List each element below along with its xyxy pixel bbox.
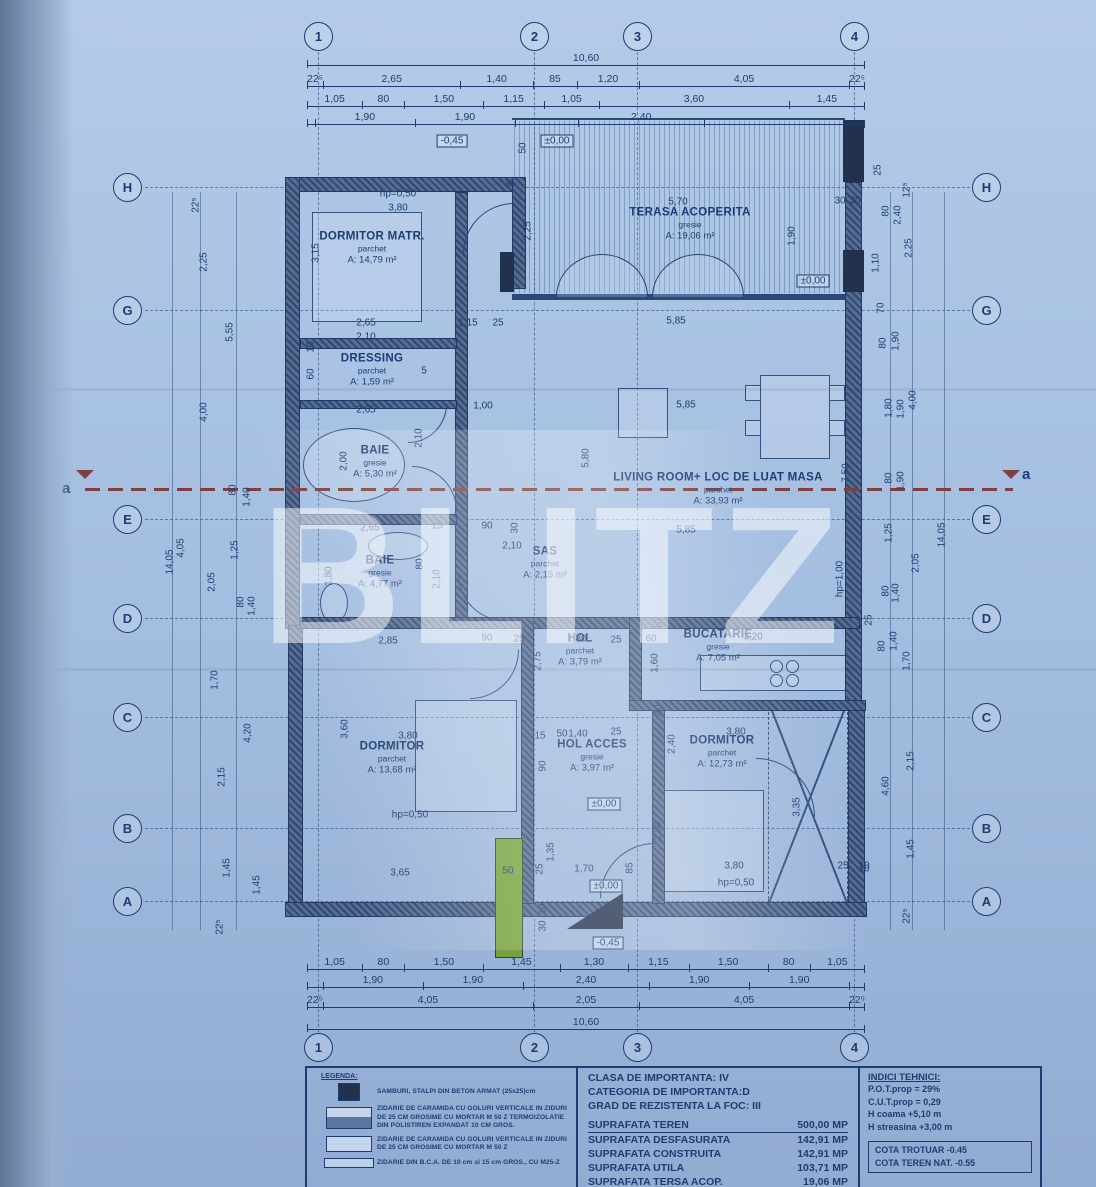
info-block: CLASA DE IMPORTANTA: IV CATEGORIA DE IMP… [576,1068,860,1187]
wall [300,338,457,349]
room-label: DORMITORparchetA: 13,68 m² [360,741,425,776]
dimension-segment: 1,15 [483,93,544,107]
grid-bubble: G [113,296,142,325]
dimension-label: 2,05 [911,553,922,572]
blueprint-photo: 11223344HHGGEEDDCCBBAA10,6022⁵2,651,4085… [0,0,1096,1187]
dimension-label: 2,25 [904,238,915,257]
dimension-label: 12⁵ [902,182,913,197]
grid-bubble: H [113,173,142,202]
dimension-label: 4,00 [199,402,210,421]
entrance-mat [495,838,523,958]
dimension-label: 3,80 [726,727,745,738]
grid-bubble: H [972,173,1001,202]
dimension-label: 30 [538,920,549,931]
dim-chain: 1,901,902,401,901,90 [307,974,865,988]
room-label: DORMITORparchetA: 12,73 m² [690,735,755,770]
suprafata-cell: SUPRAFATA DESFASURATA [588,1133,730,1147]
indice-line: C.U.T.prop = 0,29 [868,1096,1032,1109]
dimension-label: 30 [538,903,549,914]
concrete-column [500,252,514,292]
room-label: TERASA ACOPERITAgresieA: 19,06 m² [629,207,750,242]
room-text: LIVING ROOM+ LOC DE LUAT MASA [613,472,822,484]
dimension-label: 80 [878,337,889,348]
dimension-label: 1,70 [574,864,593,875]
room-text: parchet [319,244,424,254]
dimension-label: 25 [610,727,621,738]
dimension-label: 22⁵ [215,919,226,934]
indice-line: P.O.T.prop = 29% [868,1083,1032,1096]
dimension-label: 25 [535,863,546,874]
room-text: DORMITOR [360,741,425,753]
grid-bubble: E [972,505,1001,534]
dim-chain-line [200,192,201,930]
suprafata-cell: SUPRAFATA TEREN [588,1118,689,1132]
dimension-label: 1,10 [871,253,882,272]
room-text: parchet [341,366,403,376]
dimension-label: 5 [421,366,427,377]
section-label-left: a [62,480,70,497]
dimension-label: 80 [877,640,888,651]
dimension-label: ±0,00 [590,880,623,893]
room-text: DRESSING [341,353,403,365]
dimension-label: 60 [645,634,656,645]
dim-chain: 10,60 [307,1016,865,1030]
dimension-segment: 2,40 [578,111,704,125]
dimension-label: 4,20 [243,723,254,742]
dimension-label: 1,25 [884,523,895,542]
legend-item: SAMBURI, STALPI DIN BETON ARMAT (25x25)c… [321,1084,568,1100]
wall-swatch-icon [326,1136,372,1152]
dimension-label: 1,40 [568,729,587,740]
dimension-label: 1,40 [889,631,900,650]
dimension-label: 5,85 [676,525,695,536]
dimension-label: 2,10 [356,332,375,343]
legend-item-text: ZIDARIE DE CARAMIDA CU GOLURI VERTICALE … [377,1136,568,1153]
dimension-segment: 1,45 [789,93,865,107]
cota-line: COTA TROTUAR -0.45 [875,1144,1025,1157]
dim-chain: 1,05801,501,151,053,601,45 [307,93,865,107]
legend-item: ZIDARIE DE CARAMIDA CU GOLURI VERTICALE … [321,1105,568,1131]
door-swing-arc [463,203,514,254]
indici-block: INDICI TEHNICI: P.O.T.prop = 29%C.U.T.pr… [860,1068,1040,1187]
suprafata-row: SUPRAFATA TEREN500,00 MP [588,1118,848,1133]
grid-bubble: 2 [520,22,549,51]
dimension-segment: 1,45 [483,956,559,970]
room-text: BAIE [358,555,402,567]
dimension-label: 2,65 [360,523,379,534]
dimension-label: 1,70 [902,651,913,670]
page-fold [0,668,1096,671]
entrance-steps-icon [567,893,623,929]
furniture [760,375,830,459]
dimension-label: 7,50 [841,463,852,482]
room-text: A: 5,30 m² [353,469,397,480]
dimension-label: 80 [415,558,426,569]
furniture [829,385,845,401]
room-text: A: 33,93 m² [613,496,822,507]
dimension-label: 25 [873,164,884,175]
wall [848,700,865,916]
dimension-segment [515,111,578,125]
dimension-segment: 1,30 [560,956,628,970]
dimension-segment: 1,90 [649,974,749,988]
room-label: BAIEgresieA: 5,30 m² [353,445,397,480]
dim-chain: 1,05801,501,451,301,151,50801,05 [307,956,865,970]
grid-bubble: D [972,604,1001,633]
furniture [618,388,668,438]
room-text: parchet [360,754,425,764]
grid-bubble: D [113,604,142,633]
dimension-label: 3,35 [792,797,803,816]
room-text: gresie [353,458,397,468]
dimension-label: 10 [654,618,665,629]
grad-rezistenta: GRAD DE REZISTENTA LA FOC: III [588,1100,848,1114]
room-label: BUCATARIEgresieA: 7,05 m² [684,629,753,664]
dimension-label: 2,40 [893,205,904,224]
grid-bubble: A [972,887,1001,916]
dimension-label: 5,85 [666,316,685,327]
legend: LEGENDA: SAMBURI, STALPI DIN BETON ARMAT… [307,1068,576,1187]
room-text: A: 14,79 m² [319,255,424,266]
room-label: SASparchetA: 2,15 m² [523,546,567,581]
suprafata-row: SUPRAFATA DESFASURATA142,91 MP [588,1133,848,1147]
dimension-label: 2,25 [523,221,534,240]
dimension-label: 2,10 [414,428,425,447]
dimension-segment: 1,50 [689,956,768,970]
grid-bubble: 4 [840,1033,869,1062]
dimension-segment: 2,65 [323,73,460,87]
dimension-label: 5,80 [581,448,592,467]
dimension-label: 25 [837,861,848,872]
dimension-segment: 1,05 [544,93,599,107]
dimension-label: 1,90 [896,399,907,418]
room-text: A: 19,06 m² [629,231,750,242]
dimension-label: 50 [518,142,529,153]
dimension-segment: 1,05 [810,956,865,970]
legend-item: ZIDARIE DE CARAMIDA CU GOLURI VERTICALE … [321,1136,568,1153]
dimension-segment: 1,40 [460,73,533,87]
room-label: DRESSINGparchetA: 1,59 m² [341,353,403,388]
dimension-segment: 1,90 [323,974,423,988]
dimension-label: 3,20 [743,632,762,643]
room-text: HOL ACCES [557,739,627,751]
dimension-label: 80 [228,484,239,495]
dimension-label: 4,00 [908,390,919,409]
dimension-segment: 80 [768,956,810,970]
room-text: A: 1,59 m² [341,377,403,388]
dimension-label: 35 [504,179,515,190]
dimension-label: 22⁵ [191,197,202,212]
dimension-label: 1,35 [546,842,557,861]
dimension-label: ±0,00 [541,135,574,148]
wall [288,625,303,917]
room-text: gresie [358,568,402,578]
grid-bubble: G [972,296,1001,325]
furniture [745,385,761,401]
room-text: gresie [684,642,753,652]
dimension-segment: 1,90 [315,111,415,125]
dimension-label: 22⁵ [902,908,913,923]
cota-box: COTA TROTUAR -0.45COTA TEREN NAT. -0.55 [868,1141,1032,1173]
grid-bubble: 4 [840,22,869,51]
dimension-segment [307,111,315,125]
room-text: parchet [613,485,822,495]
grid-bubble: 3 [623,22,652,51]
dim-chain-line [944,192,945,930]
book-spine-shadow [0,0,74,1187]
dimension-label: hp=0,50 [718,878,754,889]
dimension-segment: 1,50 [404,93,483,107]
grid-bubble: E [113,505,142,534]
room-text: parchet [523,559,567,569]
dimension-label: hp=0,50 [392,810,428,821]
grid-bubble: 1 [304,22,333,51]
fixture [770,660,783,673]
dimension-segment: 4,05 [323,994,533,1008]
dimension-label: 2,65 [356,318,375,329]
dimension-label: -0,45 [593,937,624,950]
dimension-label: 14,05 [165,549,176,574]
grid-bubble: B [113,814,142,843]
room-text: BUCATARIE [684,629,753,641]
dimension-label: 1,00 [473,401,492,412]
dimension-label: 50 [556,729,567,740]
grid-line-col [318,52,319,1032]
suprafata-cell: 103,71 MP [797,1161,848,1175]
suprafata-cell: SUPRAFATA TERSA ACOP. [588,1175,723,1187]
dimension-label: 60 [306,368,317,379]
dimension-label: 4,60 [881,776,892,795]
dimension-label: 80 [881,205,892,216]
fixture [786,674,799,687]
dimension-label: 14,05 [937,522,948,547]
dimension-label: 2,10 [502,541,521,552]
dimension-segment: 2,05 [533,994,639,1008]
legend-item-text: SAMBURI, STALPI DIN BETON ARMAT (25x25)c… [377,1088,535,1097]
suprafata-cell: 19,06 MP [803,1175,848,1187]
dimension-label: 1,15 [458,318,477,329]
dimension-label: 30 [849,196,860,207]
dimension-label: 1,45 [906,839,917,858]
dimension-segment: 1,90 [415,111,515,125]
legend-item: ZIDARIE DIN B.C.A. DE 10 cm si 15 cm GRO… [321,1158,568,1168]
furniture [829,420,845,436]
dimension-label: 5,55 [225,322,236,341]
legend-item-text: ZIDARIE DE CARAMIDA CU GOLURI VERTICALE … [377,1105,568,1131]
fixture [786,660,799,673]
dim-chain: 22⁵4,052,054,0522⁵ [307,994,865,1008]
dimension-label: 2,25 [199,252,210,271]
suprafata-cell: SUPRAFATA UTILA [588,1161,684,1175]
dimension-label: 3,80 [724,861,743,872]
grid-bubble: 3 [623,1033,652,1062]
room-text: TERASA ACOPERITA [629,207,750,219]
categoria-importanta: CATEGORIA DE IMPORTANTA:D [588,1086,848,1100]
dimension-label: 2,30 [653,821,664,840]
cota-line: COTA TEREN NAT. -0.55 [875,1157,1025,1170]
dimension-label: 1,40 [247,596,258,615]
dimension-segment: 10,60 [307,52,865,66]
dim-chain-line [236,192,237,930]
dimension-label: 2,75 [533,651,544,670]
suprafata-cell: 142,91 MP [797,1133,848,1147]
dimension-segment: 1,20 [577,73,639,87]
dimension-segment: 22⁵ [307,994,323,1008]
dimension-label: hp=1,00 [835,561,846,597]
grid-bubble: 1 [304,1033,333,1062]
dimension-label: 2,65 [356,405,375,416]
room-label: BAIEgresieA: 4,77 m² [358,555,402,590]
suprafata-cell: 500,00 MP [797,1118,848,1132]
suprafata-row: SUPRAFATA UTILA103,71 MP [588,1161,848,1175]
wall [845,290,862,704]
dimension-label: 1,70 [210,670,221,689]
dimension-label: 2,15 [906,751,917,770]
dimension-label: hp=0,50 [380,189,416,200]
dimension-segment: 1,90 [423,974,523,988]
dim-chain: 22⁵2,651,40851,204,0522⁵ [307,73,865,87]
dimension-segment: 80 [362,956,404,970]
dimension-label: 50 [502,866,513,877]
dimension-label: 90 [538,760,549,771]
room-text: parchet [690,748,755,758]
dimension-label: 2,15 [217,767,228,786]
dimension-segment: 1,50 [404,956,483,970]
dimension-segment [849,974,865,988]
dimension-segment: 1,05 [307,956,362,970]
grid-bubble: B [972,814,1001,843]
wall-thermo-swatch-icon [326,1107,372,1129]
dimension-label: ±0,00 [797,275,830,288]
suprafata-cell: SUPRAFATA CONSTRUITA [588,1147,721,1161]
concrete-column [843,120,864,182]
room-text: parchet [558,646,602,656]
room-text: DORMITOR MATR. [319,231,424,243]
room-text: A: 13,68 m² [360,765,425,776]
furniture [745,420,761,436]
dimension-label: 25 [513,634,524,645]
room-text: A: 7,05 m² [684,653,753,664]
dimension-label: ±0,00 [588,798,621,811]
clasa-importanta: CLASA DE IMPORTANTA: IV [588,1072,848,1086]
dimension-segment: 4,05 [639,994,849,1008]
dimension-label: 30 [834,196,845,207]
dimension-label: 3,80 [388,203,407,214]
dimension-label: 2,10 [432,569,443,588]
section-line [85,488,1013,491]
dimension-label: 40 [654,704,665,715]
dimension-label: 2,40 [667,734,678,753]
wall [629,617,642,703]
dimension-label: 3,80 [398,731,417,742]
dimension-segment: 80 [362,93,404,107]
dimension-label: 25 [610,635,621,646]
section-arrow-right-icon [1002,470,1020,479]
indice-line: H streasina +3,00 m [868,1121,1032,1134]
dimension-label: 2,85 [378,636,397,647]
dimension-label: 5,85 [676,400,695,411]
wall [285,177,300,629]
dimension-label: 90 [481,521,492,532]
dim-chain: 1,901,902,40 [307,111,865,125]
dimension-label: 15 [431,521,442,532]
wall [300,617,860,629]
room-text: A: 3,79 m² [558,657,602,668]
wall [629,700,866,711]
dimension-segment: 1,15 [628,956,689,970]
dimension-segment: 22⁵ [849,73,865,87]
title-block-panel: LEGENDA: SAMBURI, STALPI DIN BETON ARMAT… [305,1066,1042,1187]
dimension-label: 3,65 [390,868,409,879]
dimension-label: -0,45 [437,135,468,148]
room-text: A: 4,77 m² [358,579,402,590]
dimension-label: 1,80 [324,566,335,585]
dimension-label: 15 [534,731,545,742]
photo-light-reflection [0,430,1096,950]
room-label: LIVING ROOM+ LOC DE LUAT MASAparchetA: 3… [613,472,822,507]
room-text: gresie [629,220,750,230]
dimension-segment: 3,60 [599,93,789,107]
dimension-label: 3,60 [340,719,351,738]
dimension-label: 80 [236,596,247,607]
suprafata-cell: 142,91 MP [797,1147,848,1161]
room-text: A: 12,73 m² [690,759,755,770]
dimension-label: 1,40 [242,487,253,506]
dimension-segment [307,974,323,988]
grid-bubble: A [113,887,142,916]
room-text: gresie [557,752,627,762]
dim-chain: 10,60 [307,52,865,66]
grid-bubble: C [113,703,142,732]
dim-chain-line [890,192,891,930]
dimension-label: 1,60 [650,653,661,672]
suprafata-row: SUPRAFATA TERSA ACOP.19,06 MP [588,1175,848,1187]
dimension-segment: 1,90 [749,974,849,988]
section-arrow-left-icon [76,470,94,479]
dimension-segment: 1,05 [307,93,362,107]
room-label: DORMITOR MATR.parchetA: 14,79 m² [319,231,424,266]
dimension-label: 85 [625,862,636,873]
dimension-label: 1,90 [896,471,907,490]
dimension-label: 25 [864,614,875,625]
furniture [415,700,517,812]
dimension-label: 2,00 [339,451,350,470]
dimension-segment: 22⁵ [307,73,323,87]
dimension-label: 1,90 [891,331,902,350]
dimension-segment: 85 [533,73,577,87]
dimension-label: 1,80 [884,398,895,417]
dimension-segment [704,111,865,125]
dimension-label: 25 [492,318,503,329]
furniture [312,212,422,322]
dimension-label: 10 [306,341,317,352]
dimension-label: 1,40 [891,583,902,602]
dimension-label: 90 [481,633,492,644]
legend-title: LEGENDA: [321,1073,568,1080]
indice-line: H coama +5,10 m [868,1108,1032,1121]
room-text: BAIE [353,445,397,457]
dimension-label: 10 [858,864,869,875]
dimension-segment: 4,05 [639,73,849,87]
dimension-segment: 2,40 [523,974,649,988]
dimension-label: 1,25 [230,540,241,559]
column-swatch-icon [339,1084,359,1100]
room-text: SAS [523,546,567,558]
dimension-label: 5,70 [668,197,687,208]
grid-bubble: C [972,703,1001,732]
room-text: A: 2,15 m² [523,570,567,581]
suprafata-row: SUPRAFATA CONSTRUITA142,91 MP [588,1147,848,1161]
